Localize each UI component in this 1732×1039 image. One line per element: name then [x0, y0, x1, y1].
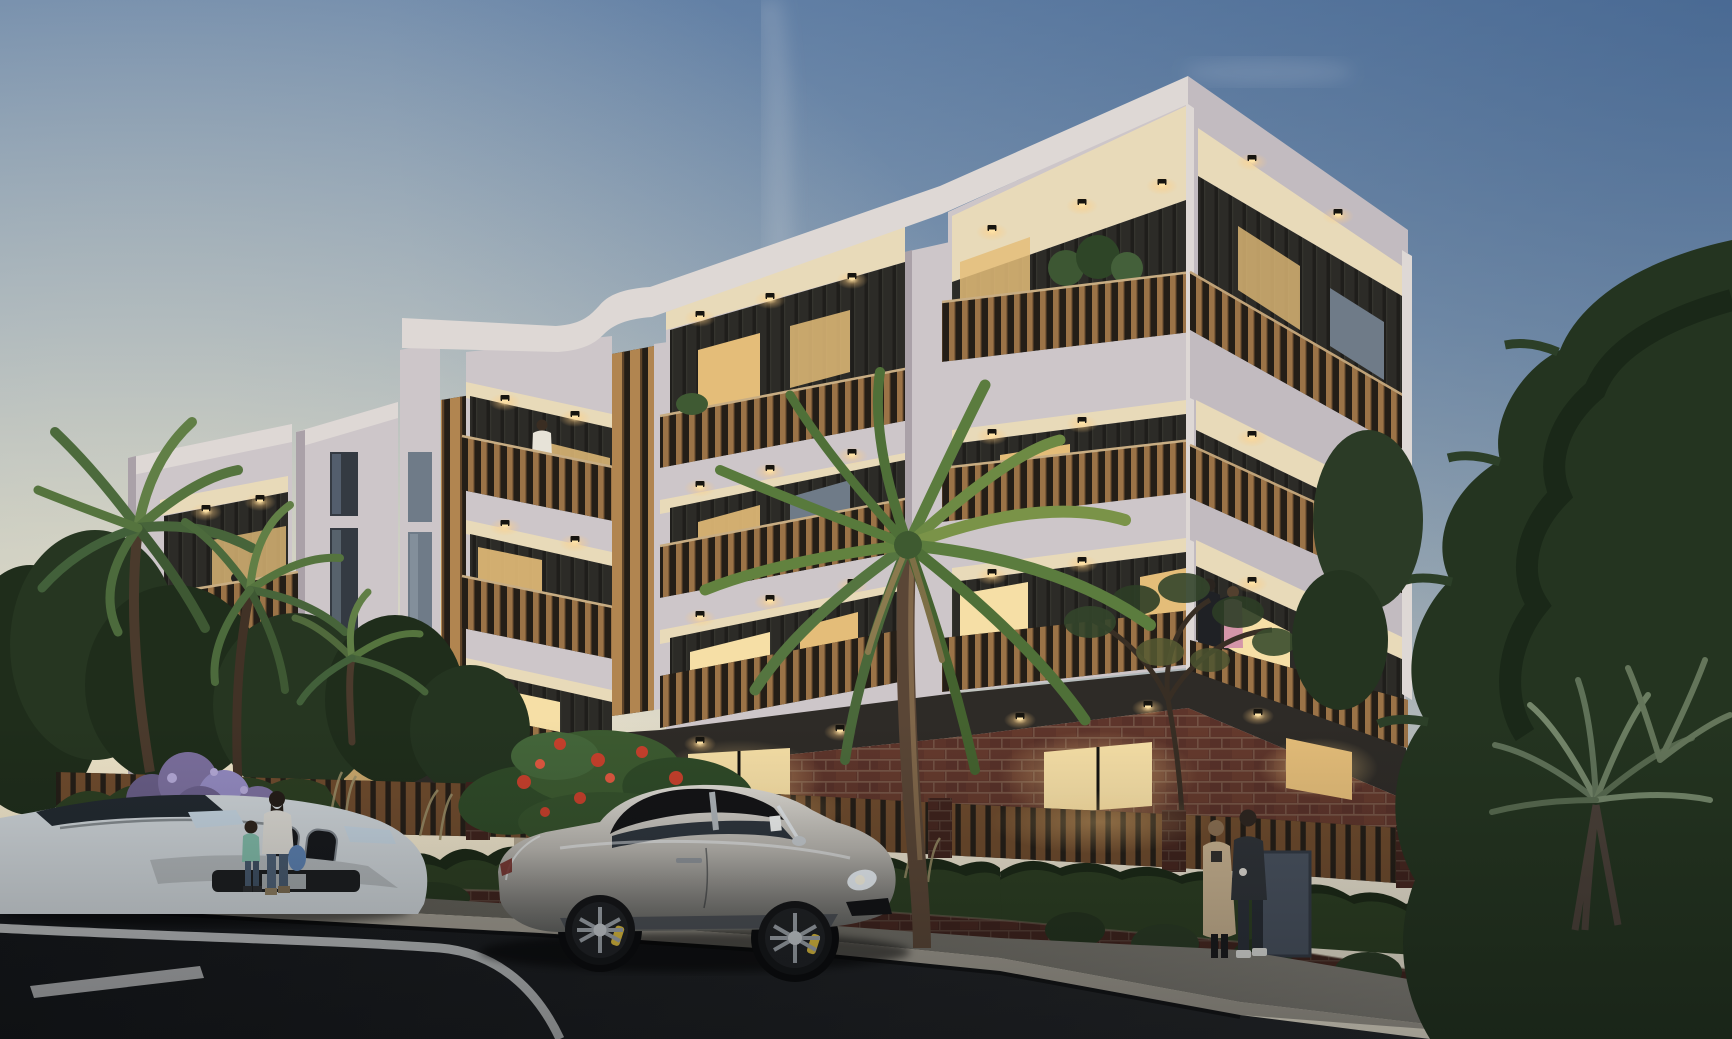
scene	[0, 0, 1732, 1039]
render-canvas	[0, 0, 1732, 1039]
bottom-vignette	[0, 0, 1732, 1039]
